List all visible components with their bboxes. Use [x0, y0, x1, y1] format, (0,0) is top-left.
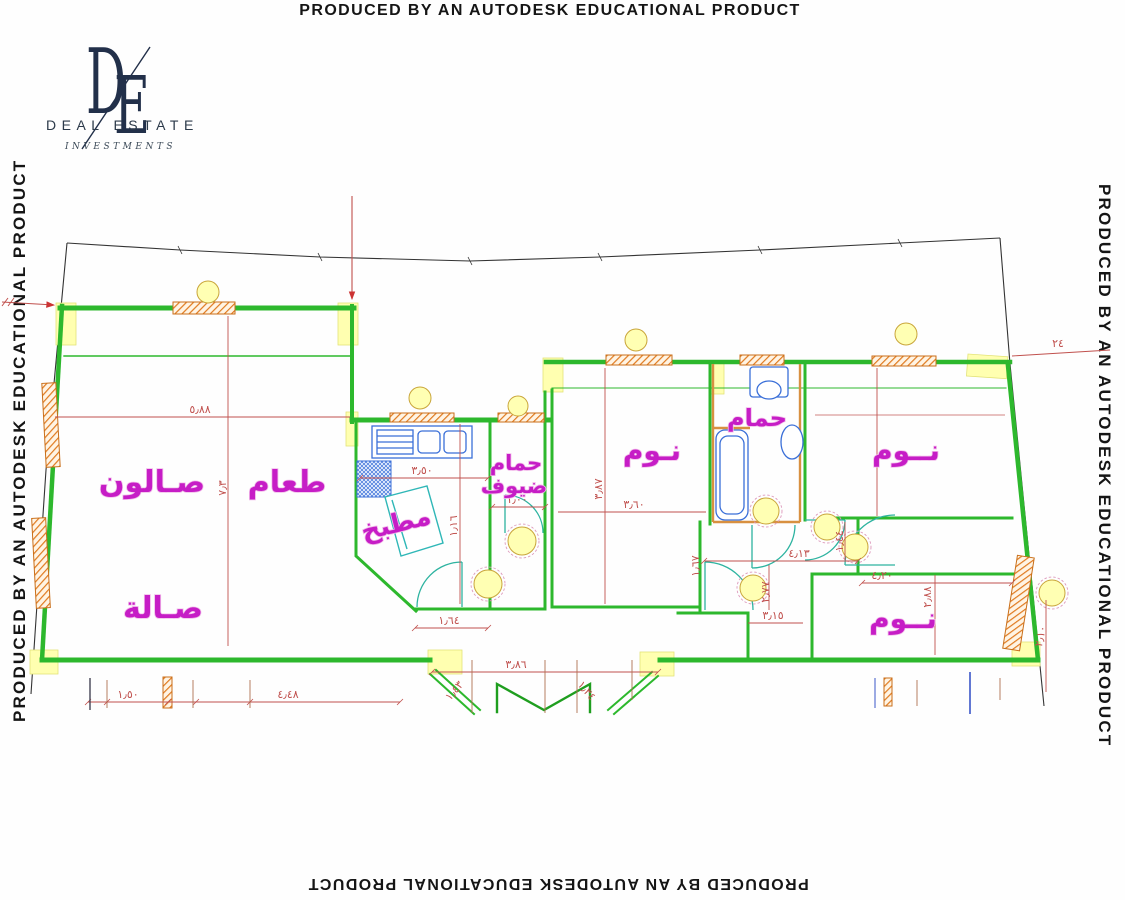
stove	[357, 461, 391, 497]
dim-corridor-left: ١٫٦٧	[689, 555, 702, 576]
dim-entrance-width: ٣٫٨٦	[505, 658, 526, 671]
bathroom-fixtures	[716, 367, 803, 520]
room-label-bedroom-3: نــوم	[869, 602, 937, 635]
room-label-hall: صـالة	[123, 591, 203, 626]
dim-corridor-bottom: ٣٫١٥	[762, 609, 783, 622]
room-label-guest-bath-1: حمام	[490, 451, 543, 475]
dim-bedroom3-width: ٤٫٢٠	[871, 569, 892, 582]
dim-plot-bottom-b: ٤٫٤٨	[277, 688, 298, 701]
dim-salon-width: ٥٫٨٨	[189, 403, 210, 416]
dim-kitchen-bottom: ١٫٦٤	[438, 614, 459, 627]
dim-salon-depth: ٧٫٣	[216, 480, 229, 495]
dim-bedroom3-door: ١٫٤٤	[833, 530, 846, 551]
dim-corridor-depth: ٢٫٧٧	[759, 581, 772, 602]
room-label-salon: صـالون	[99, 465, 205, 500]
dim-kitchen-right: ١٫١٦	[447, 515, 460, 536]
dimension-lines	[2, 196, 1110, 705]
window-hatches	[32, 302, 1035, 708]
floor-plan-drawing: ٥٫٨٨ ٧٫٣ ٣٫٥٠ ١٫٠٠ ١٫١٦ ١٫٦٤ ٣٫٨٧ ٣٫٦٠ ٣…	[0, 0, 1125, 900]
dim-boundary-leader: ٢٤	[1052, 337, 1064, 350]
walls	[42, 306, 1038, 714]
dim-splay-left: ١٫٤٣	[442, 678, 466, 703]
dim-bedroom1-depth: ٣٫٨٧	[592, 478, 605, 499]
room-label-bedroom-1: نـوم	[623, 434, 681, 467]
dim-corridor-width: ٤٫١٣	[788, 547, 809, 560]
dimension-texts: ٥٫٨٨ ٧٫٣ ٣٫٥٠ ١٫٠٠ ١٫١٦ ١٫٦٤ ٣٫٨٧ ٣٫٦٠ ٣…	[117, 337, 1064, 703]
dim-splay-right: ١٫٣٤	[575, 678, 599, 703]
room-label-guest-bath-2: ضيوف	[481, 474, 547, 498]
room-label-dining: طعام	[248, 465, 326, 500]
dim-bedroom1-width: ٣٫٦٠	[623, 498, 644, 511]
room-label-bathroom: حمام	[727, 404, 787, 432]
dim-plot-bottom-a: ١٫٥٠	[117, 688, 138, 701]
kitchen-counter	[372, 426, 472, 458]
wall-ticks	[90, 660, 1000, 714]
floor-plan-sheet: PRODUCED BY AN AUTODESK EDUCATIONAL PROD…	[0, 0, 1125, 900]
room-label-bedroom-2: نــوم	[872, 434, 940, 467]
dim-kitchen-width: ٣٫٥٠	[411, 464, 432, 477]
